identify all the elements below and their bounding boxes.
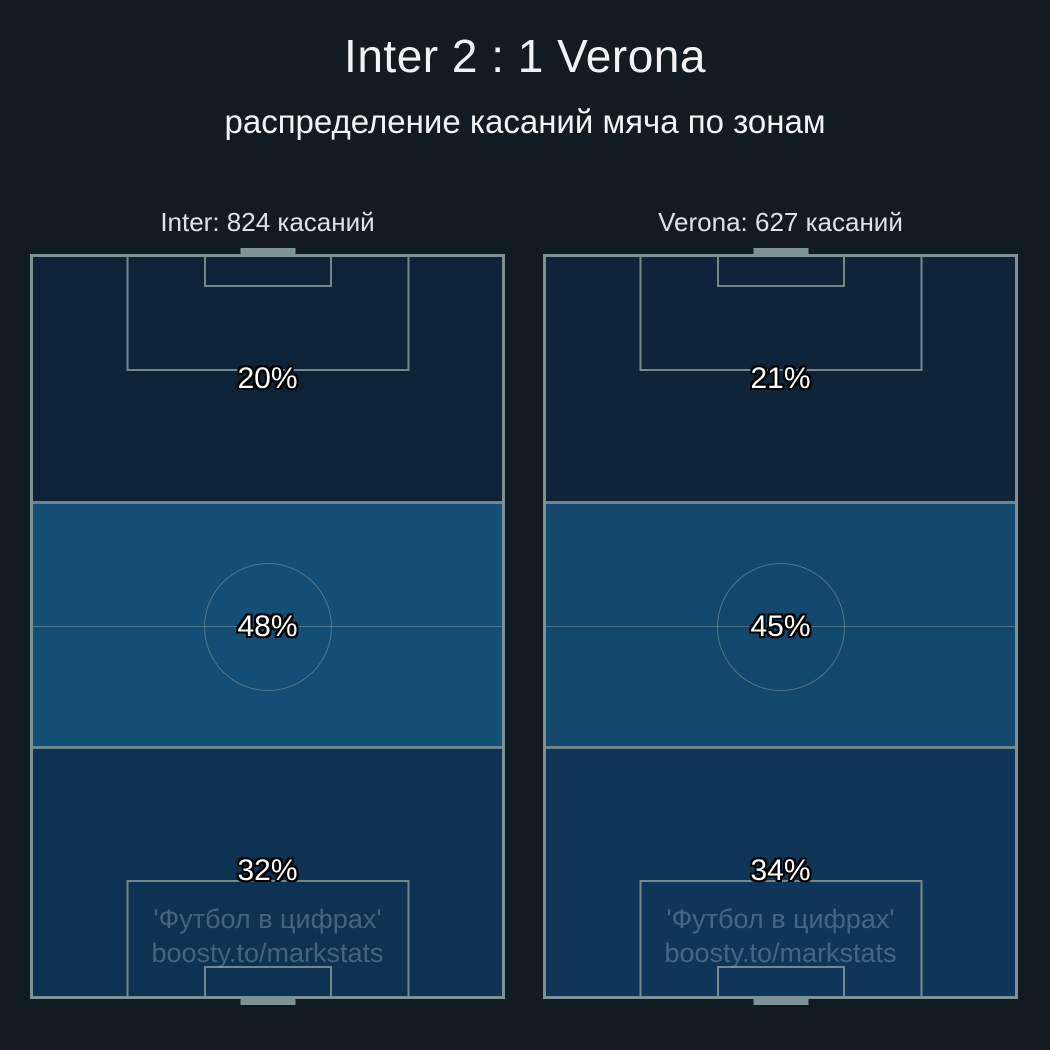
- watermark: 'Футбол в цифрах' boosty.to/markstats: [546, 902, 1015, 970]
- six-yard-box-bottom: [204, 966, 332, 996]
- watermark-line1: 'Футбол в цифрах': [546, 902, 1015, 936]
- zone-divider: [546, 501, 1015, 504]
- goal-bottom: [753, 997, 808, 1005]
- zone-divider: [546, 746, 1015, 749]
- pitch-inter: 20% 48% 32% 'Футбол в цифрах' boosty.to/…: [30, 254, 505, 999]
- pitch-verona: 21% 45% 34% 'Футбол в цифрах' boosty.to/…: [543, 254, 1018, 999]
- zone-divider: [33, 501, 502, 504]
- match-subtitle: распределение касаний мяча по зонам: [0, 100, 1050, 144]
- watermark-line1: 'Футбол в цифрах': [33, 902, 502, 936]
- zone-percent-label: 48%: [33, 609, 502, 645]
- zone-percent-label: 32%: [33, 853, 502, 889]
- zone-divider: [33, 746, 502, 749]
- zone-percent-label: 20%: [33, 361, 502, 397]
- zone-percent-label: 34%: [546, 853, 1015, 889]
- team-header-inter: Inter: 824 касаний: [30, 205, 505, 239]
- infographic-canvas: Inter 2 : 1 Verona распределение касаний…: [0, 0, 1050, 1050]
- goal-bottom: [240, 997, 295, 1005]
- zone-percent-label: 45%: [546, 609, 1015, 645]
- six-yard-box-bottom: [717, 966, 845, 996]
- goal-top: [753, 248, 808, 256]
- watermark-line2: boosty.to/markstats: [546, 936, 1015, 970]
- goal-top: [240, 248, 295, 256]
- six-yard-box-top: [204, 257, 332, 287]
- six-yard-box-top: [717, 257, 845, 287]
- zone-percent-label: 21%: [546, 361, 1015, 397]
- match-title: Inter 2 : 1 Verona: [0, 28, 1050, 84]
- watermark-line2: boosty.to/markstats: [33, 936, 502, 970]
- team-header-verona: Verona: 627 касаний: [543, 205, 1018, 239]
- watermark: 'Футбол в цифрах' boosty.to/markstats: [33, 902, 502, 970]
